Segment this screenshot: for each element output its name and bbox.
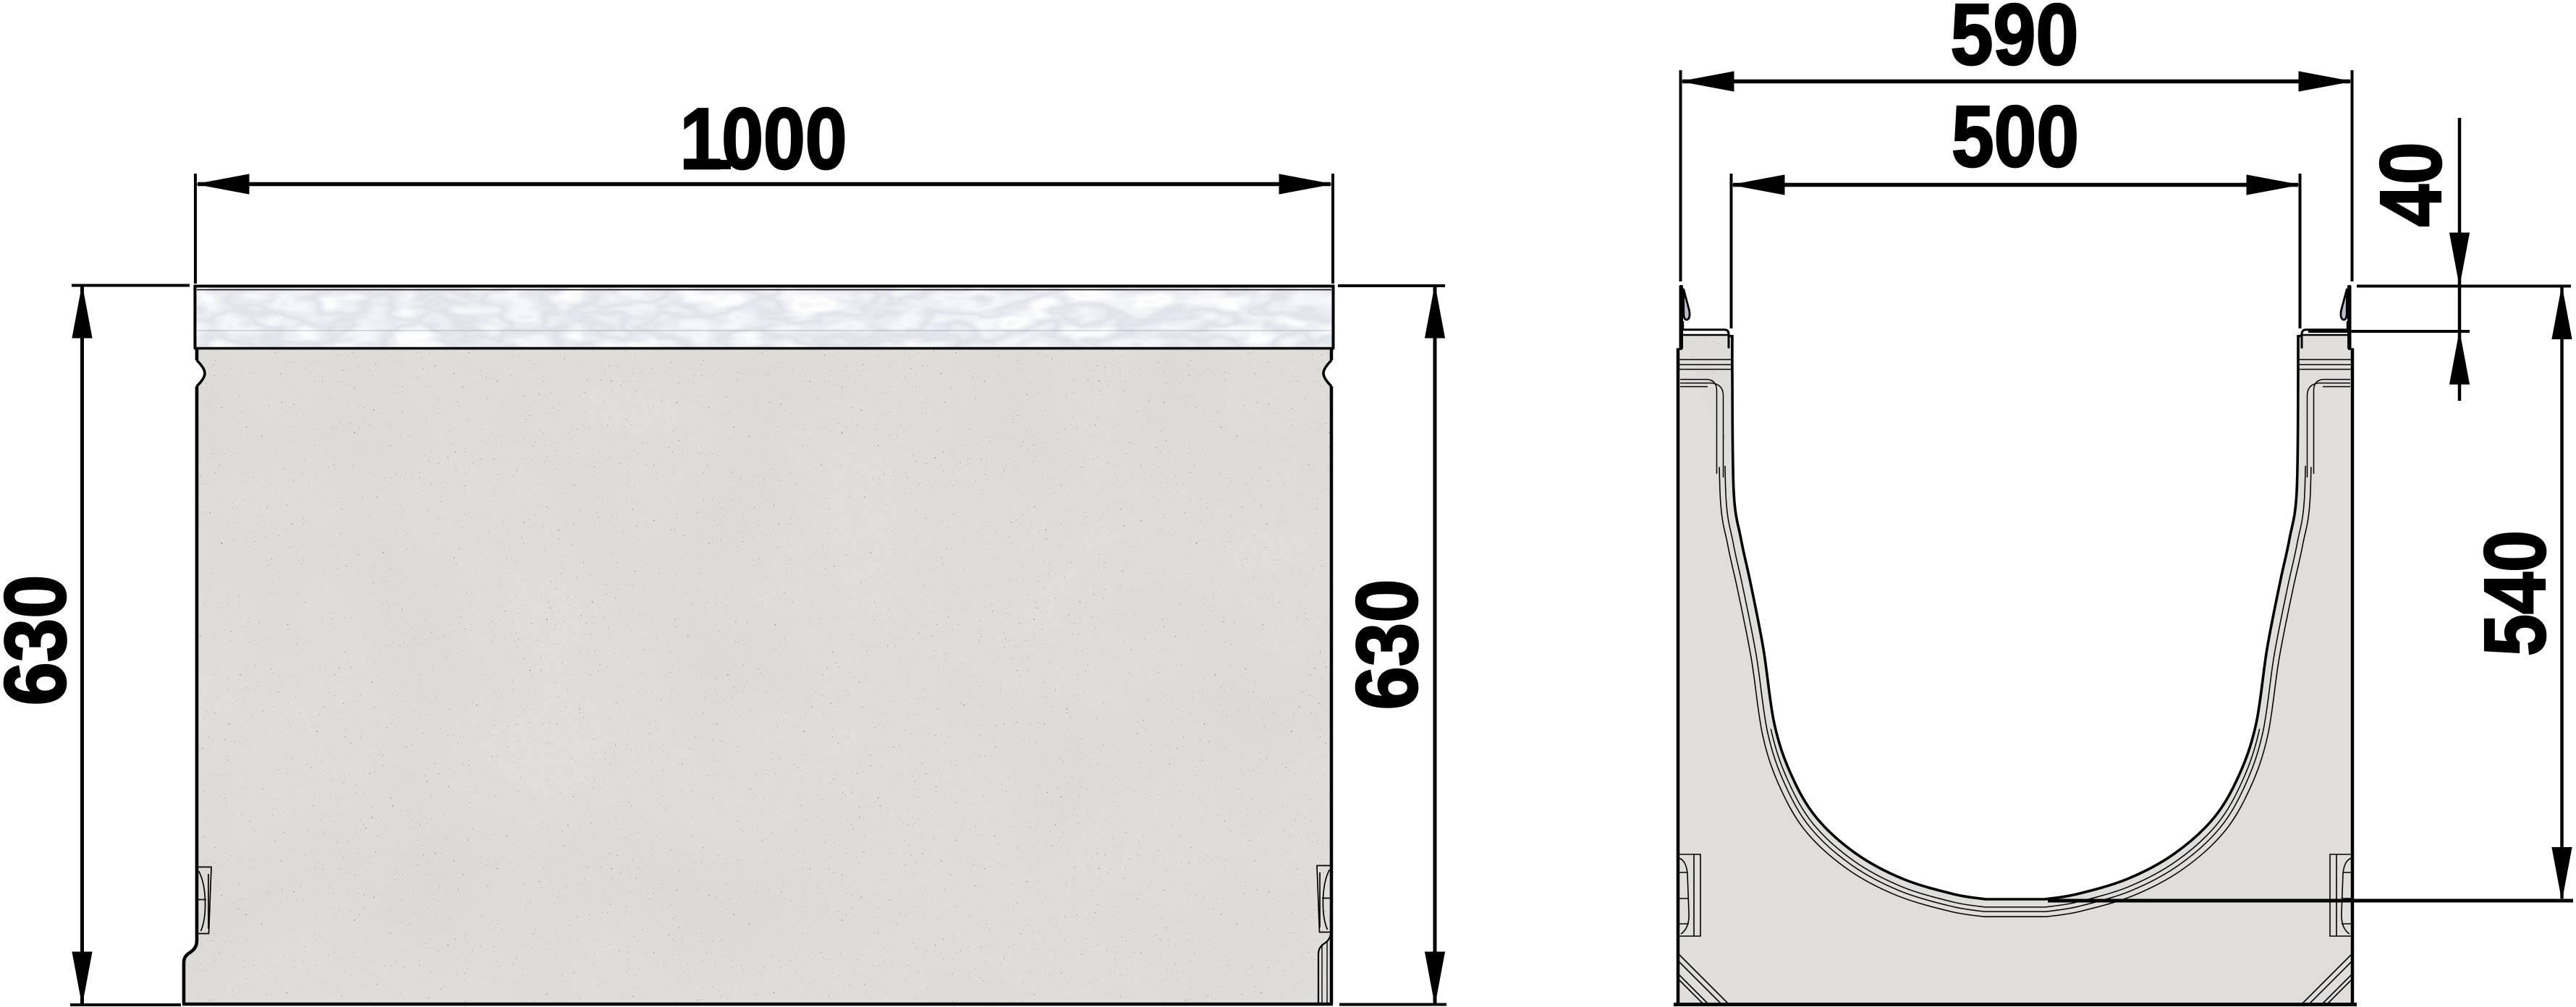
svg-text:40: 40 [2363, 143, 2460, 227]
svg-text:630: 630 [1339, 579, 1436, 710]
svg-text:1000: 1000 [680, 90, 847, 187]
svg-text:590: 590 [1951, 0, 2079, 83]
svg-text:630: 630 [0, 575, 84, 706]
svg-text:540: 540 [2467, 530, 2564, 656]
svg-text:500: 500 [1952, 88, 2079, 185]
